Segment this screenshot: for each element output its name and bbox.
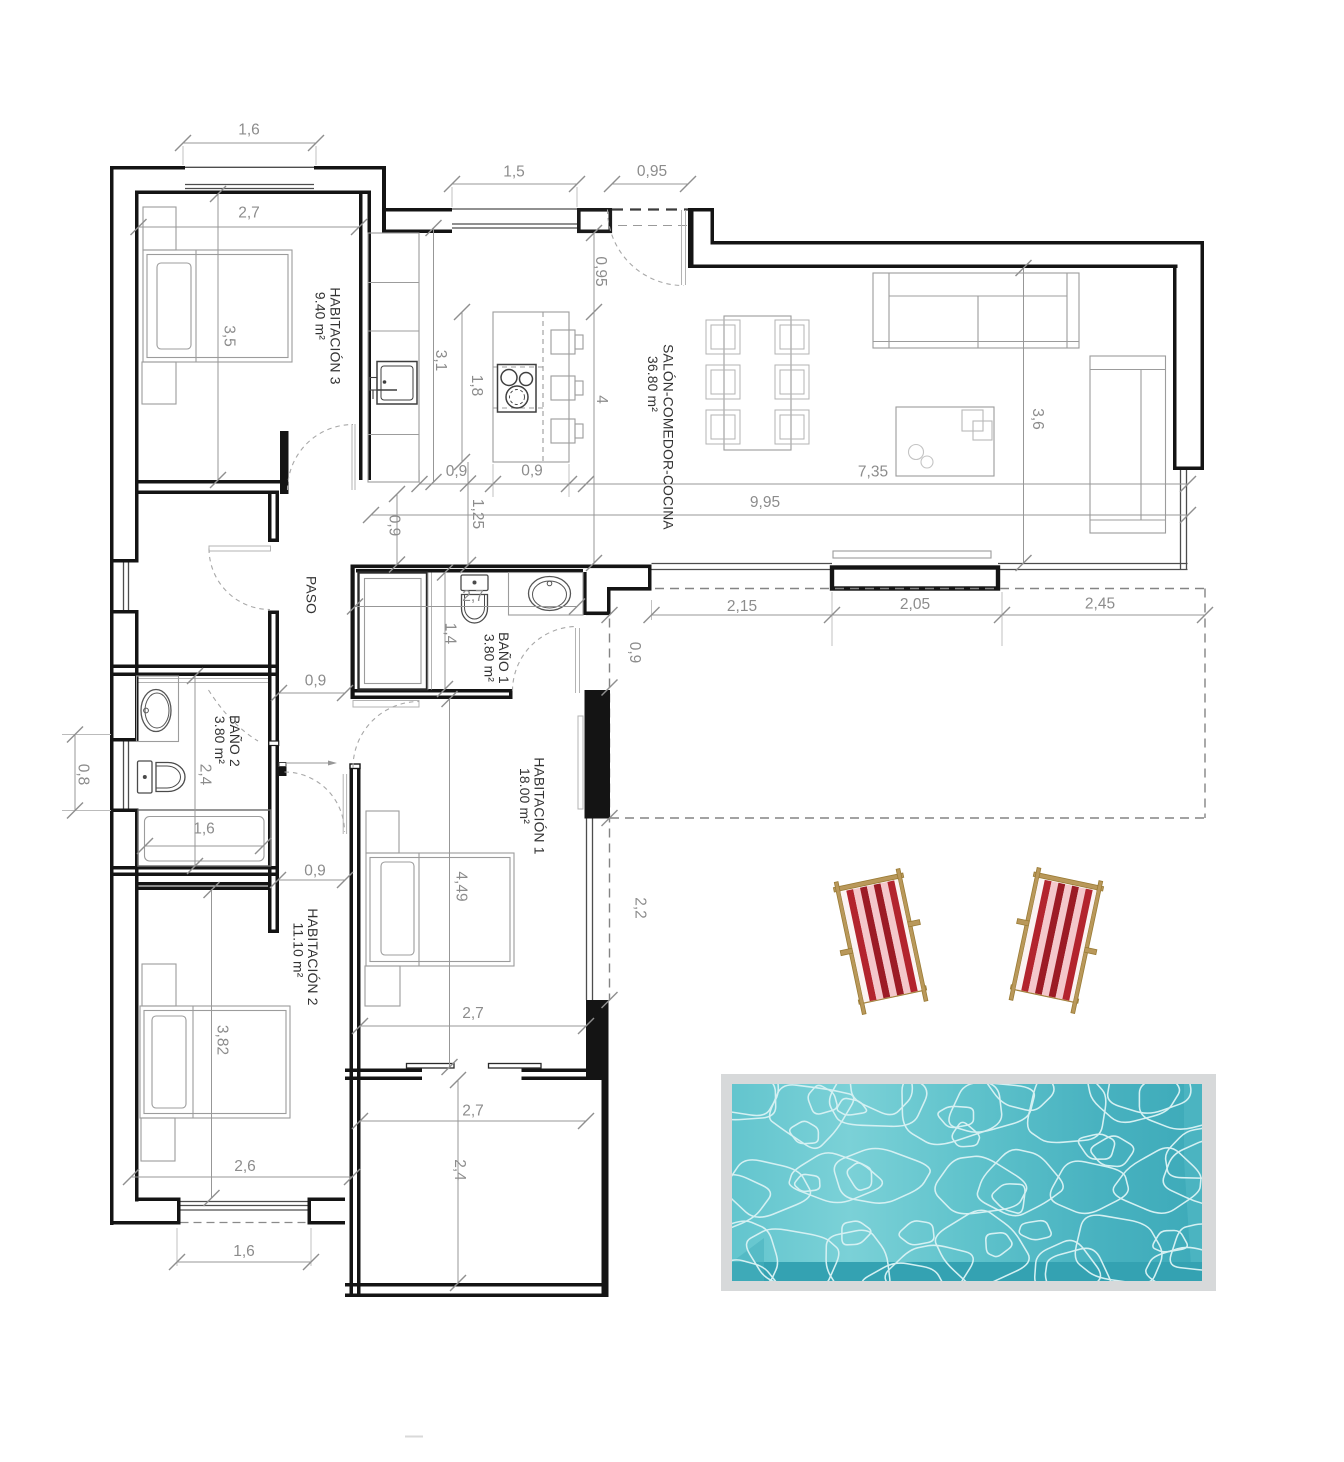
svg-text:HABITACIÓN 3: HABITACIÓN 3	[328, 287, 344, 384]
svg-text:2,7: 2,7	[462, 1005, 484, 1022]
svg-text:3.80 m²: 3.80 m²	[482, 634, 497, 682]
svg-text:9,95: 9,95	[750, 494, 780, 511]
svg-text:2,15: 2,15	[727, 598, 757, 615]
svg-text:7,35: 7,35	[858, 464, 888, 481]
svg-text:0,9: 0,9	[446, 463, 468, 480]
svg-text:2,2: 2,2	[632, 897, 649, 919]
svg-text:4: 4	[593, 395, 610, 404]
svg-text:0,9: 0,9	[521, 463, 543, 480]
svg-text:18.00 m²: 18.00 m²	[517, 768, 532, 824]
svg-text:9.40 m²: 9.40 m²	[313, 292, 328, 340]
svg-text:1,6: 1,6	[238, 122, 260, 139]
svg-text:36.80 m²: 36.80 m²	[645, 356, 660, 412]
svg-text:2,05: 2,05	[900, 596, 930, 613]
svg-text:1,25: 1,25	[469, 499, 486, 529]
svg-text:2,45: 2,45	[1085, 596, 1115, 613]
svg-text:1,4: 1,4	[442, 623, 459, 645]
svg-text:1,6: 1,6	[233, 1243, 255, 1260]
svg-text:3.80 m²: 3.80 m²	[212, 716, 227, 764]
svg-text:2,4: 2,4	[197, 764, 214, 786]
svg-text:PASO: PASO	[304, 576, 319, 614]
svg-text:3,6: 3,6	[1029, 408, 1046, 430]
svg-text:3,1: 3,1	[432, 350, 449, 372]
svg-text:3,5: 3,5	[221, 325, 238, 347]
svg-text:1,5: 1,5	[503, 164, 525, 181]
svg-text:0,9: 0,9	[304, 863, 326, 880]
svg-text:0,9: 0,9	[305, 673, 327, 690]
svg-text:0,95: 0,95	[637, 163, 667, 180]
svg-text:3,82: 3,82	[214, 1025, 231, 1055]
svg-text:BAÑO 1: BAÑO 1	[496, 632, 512, 684]
svg-text:2,7: 2,7	[238, 205, 260, 222]
svg-text:2,7: 2,7	[462, 1103, 484, 1120]
svg-text:HABITACIÓN 1: HABITACIÓN 1	[532, 757, 548, 854]
svg-text:1,6: 1,6	[193, 821, 215, 838]
svg-text:2,7: 2,7	[462, 588, 484, 605]
svg-text:2,6: 2,6	[234, 1158, 256, 1175]
svg-text:0,8: 0,8	[75, 764, 92, 786]
svg-text:0,9: 0,9	[626, 642, 643, 664]
svg-text:SALÓN-COMEDOR-COCINA: SALÓN-COMEDOR-COCINA	[661, 344, 677, 530]
svg-text:1,8: 1,8	[468, 375, 485, 397]
svg-text:BAÑO 2: BAÑO 2	[227, 715, 243, 767]
svg-text:HABITACIÓN 2: HABITACIÓN 2	[305, 908, 321, 1005]
svg-text:4,49: 4,49	[453, 871, 470, 901]
svg-text:0,95: 0,95	[592, 256, 609, 286]
svg-text:0,9: 0,9	[386, 515, 403, 537]
svg-text:2,4: 2,4	[451, 1159, 468, 1181]
svg-text:11.10 m²: 11.10 m²	[291, 922, 306, 977]
